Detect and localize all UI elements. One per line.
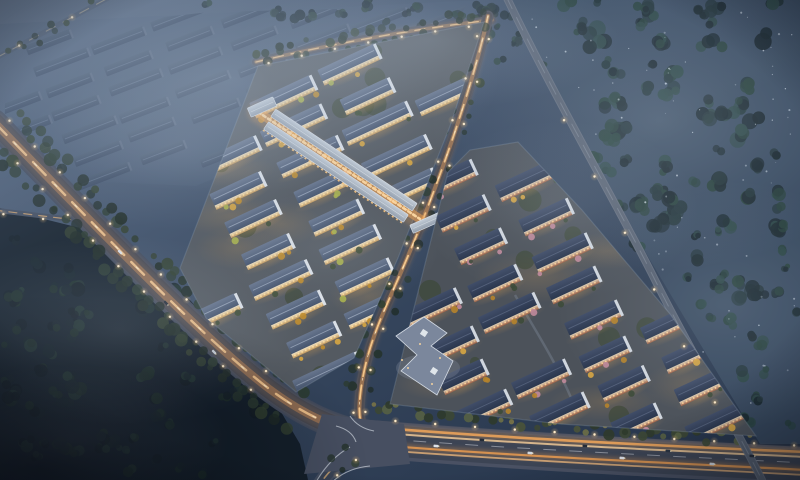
night-aerial-rendering <box>0 0 800 480</box>
layer-vignette <box>0 0 800 480</box>
scene-svg <box>0 0 800 480</box>
